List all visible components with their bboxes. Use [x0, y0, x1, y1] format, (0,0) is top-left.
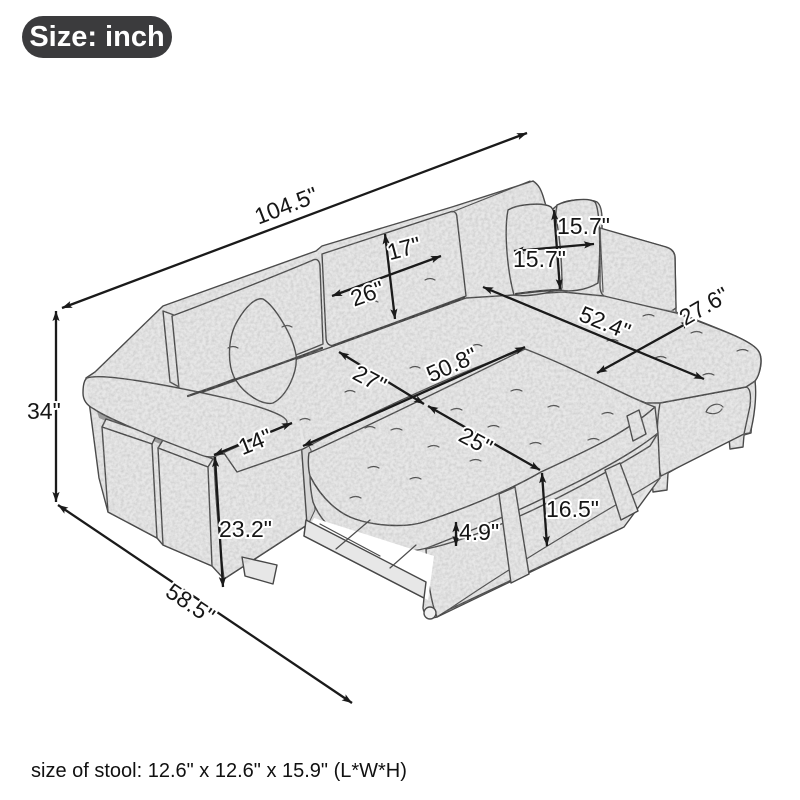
svg-text:23.2": 23.2" [219, 516, 272, 542]
svg-text:Size: inch: Size: inch [29, 21, 164, 53]
svg-text:15.7": 15.7" [513, 246, 566, 272]
svg-text:15.7": 15.7" [557, 213, 610, 239]
svg-text:4.9": 4.9" [459, 519, 499, 545]
svg-text:34": 34" [27, 398, 61, 424]
svg-text:size of stool: 12.6" x 12.6" x: size of stool: 12.6" x 12.6" x 15.9" (L*… [31, 760, 407, 782]
svg-text:16.5": 16.5" [546, 496, 599, 522]
